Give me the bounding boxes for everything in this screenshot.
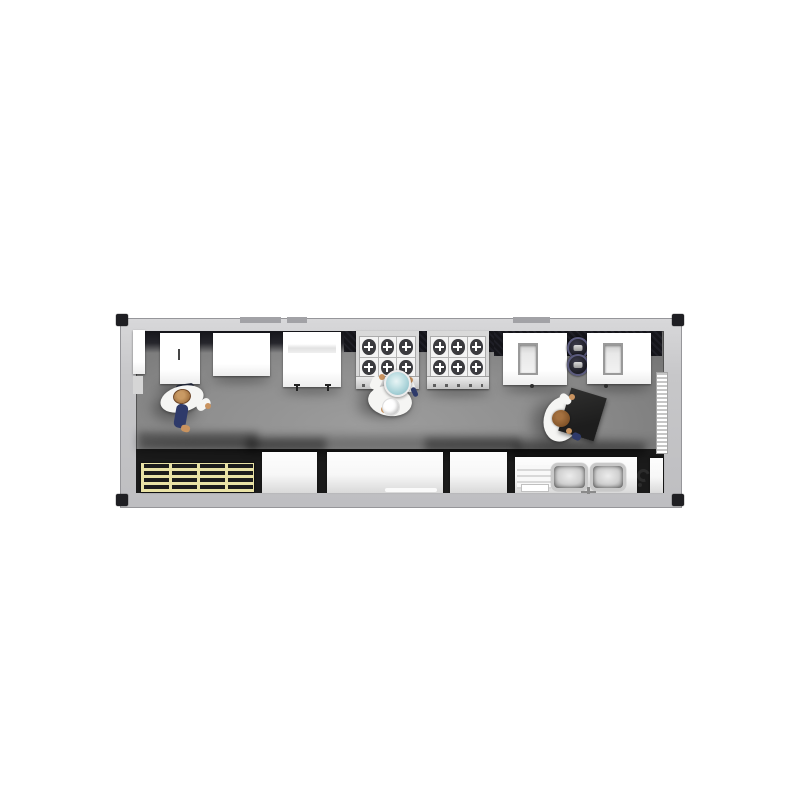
left-wall-panel xyxy=(133,376,143,394)
gas-range-2 xyxy=(427,331,489,389)
chef-hand xyxy=(566,428,572,434)
roof-vent xyxy=(513,317,550,323)
wall-rack xyxy=(656,372,668,454)
burner-icon xyxy=(431,337,448,357)
fryer-vat xyxy=(518,343,538,375)
faucet-icon xyxy=(581,491,596,493)
floor-shadow xyxy=(515,443,645,455)
refrigerator xyxy=(160,333,200,384)
stock-pot xyxy=(567,354,589,376)
floor-shadow xyxy=(246,438,326,452)
hose-nozzle-icon xyxy=(638,483,642,487)
corner-casting-icon xyxy=(116,494,128,506)
sink-basin xyxy=(551,463,588,491)
fridge-handle-icon xyxy=(178,349,180,360)
burner-icon xyxy=(449,337,466,357)
corner-casting-icon xyxy=(116,314,128,326)
end-wall-panel xyxy=(650,458,663,493)
burner-icon xyxy=(379,337,397,357)
table-foot-icon xyxy=(604,384,608,388)
range-control-panel xyxy=(427,376,489,389)
prep-table-with-shelf xyxy=(283,332,341,387)
burner-grid xyxy=(430,336,486,378)
work-counter-2 xyxy=(327,452,443,493)
scene-canvas xyxy=(0,0,800,800)
burner-icon xyxy=(431,358,448,378)
roof-vent xyxy=(287,317,307,323)
table-foot-icon xyxy=(296,384,298,391)
work-counter-1 xyxy=(262,452,317,493)
soap-tray xyxy=(521,484,549,492)
table-foot-icon xyxy=(327,384,329,391)
fryer-station-2 xyxy=(587,333,651,384)
pot-lid xyxy=(574,345,583,351)
corner-casting-icon xyxy=(672,314,684,326)
burner-icon xyxy=(397,337,415,357)
sink-basin xyxy=(590,463,626,491)
burner-icon xyxy=(468,337,485,357)
burner-icon xyxy=(449,358,466,378)
sink-unit xyxy=(515,457,637,493)
chef-head xyxy=(552,410,570,427)
floor-shadow xyxy=(138,432,258,450)
undershelf xyxy=(288,343,336,353)
counter-highlight xyxy=(385,488,437,492)
left-door-panel xyxy=(133,330,145,374)
chef-hand xyxy=(569,394,575,400)
work-counter-3 xyxy=(450,452,507,493)
fryer-vat xyxy=(603,343,623,375)
chef-hand xyxy=(205,403,211,409)
chef-toque xyxy=(382,398,400,416)
burner-grid xyxy=(359,336,416,378)
floor-shadow xyxy=(425,438,520,452)
pot-lid xyxy=(574,362,583,368)
slatted-storage-rack xyxy=(141,463,254,492)
pot-with-teal-lid xyxy=(384,370,411,397)
roof-vent xyxy=(240,317,281,323)
corner-casting-icon xyxy=(672,494,684,506)
burner-icon xyxy=(360,358,378,378)
prep-table xyxy=(213,333,270,376)
burner-icon xyxy=(468,358,485,378)
table-foot-icon xyxy=(530,384,534,388)
fryer-station-1 xyxy=(503,333,567,385)
burner-icon xyxy=(360,337,378,357)
